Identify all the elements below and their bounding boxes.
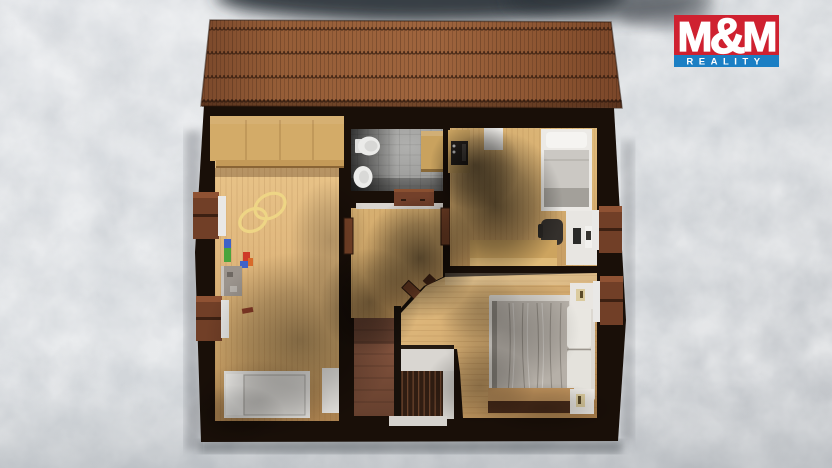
svg-text:REALITY: REALITY <box>686 57 765 68</box>
